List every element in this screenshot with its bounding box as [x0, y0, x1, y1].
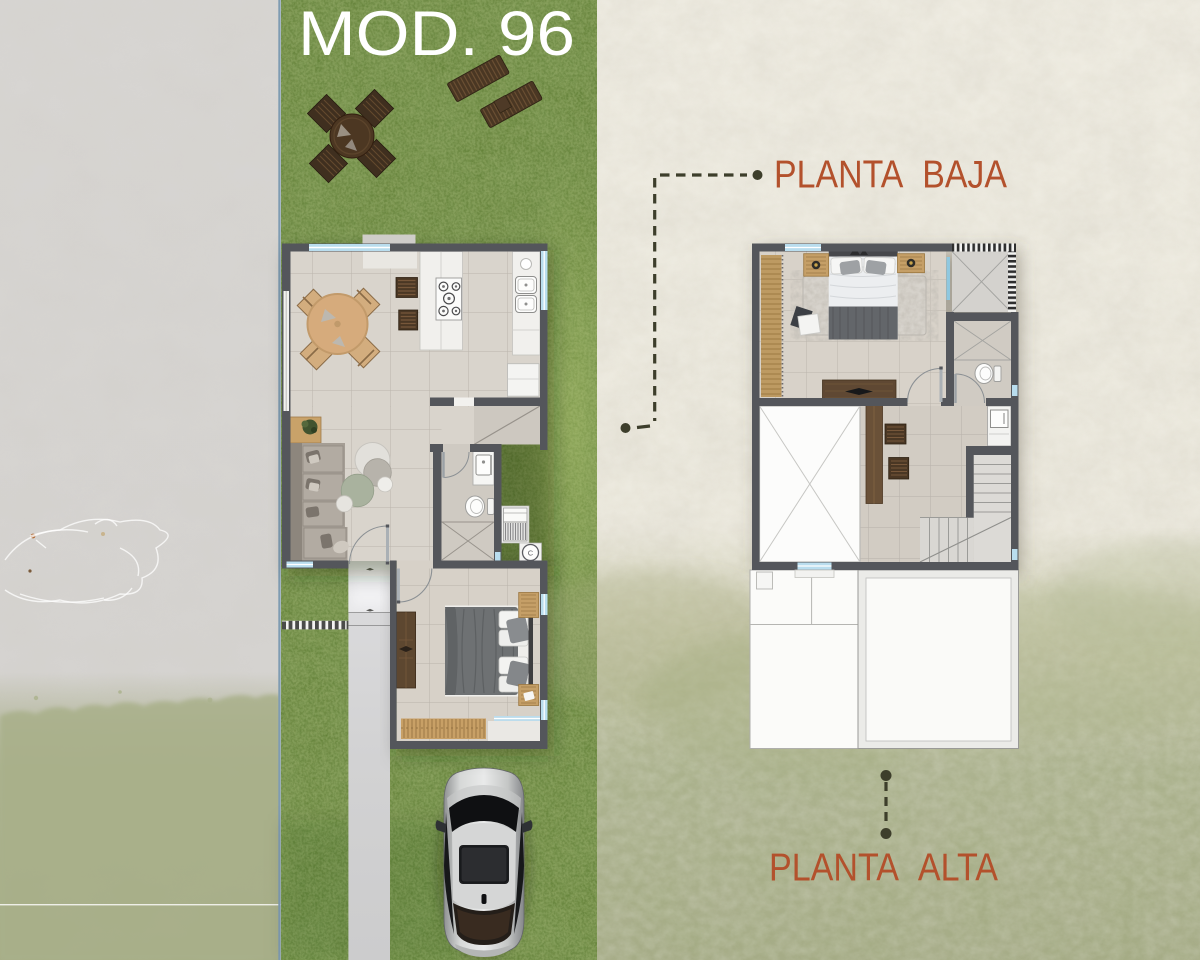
svg-text:C: C: [528, 549, 534, 558]
svg-text:PLANTA BAJA: PLANTA BAJA: [774, 154, 1007, 197]
svg-text:PLANTA ALTA: PLANTA ALTA: [769, 847, 998, 890]
svg-text:MOD. 96: MOD. 96: [298, 0, 575, 69]
